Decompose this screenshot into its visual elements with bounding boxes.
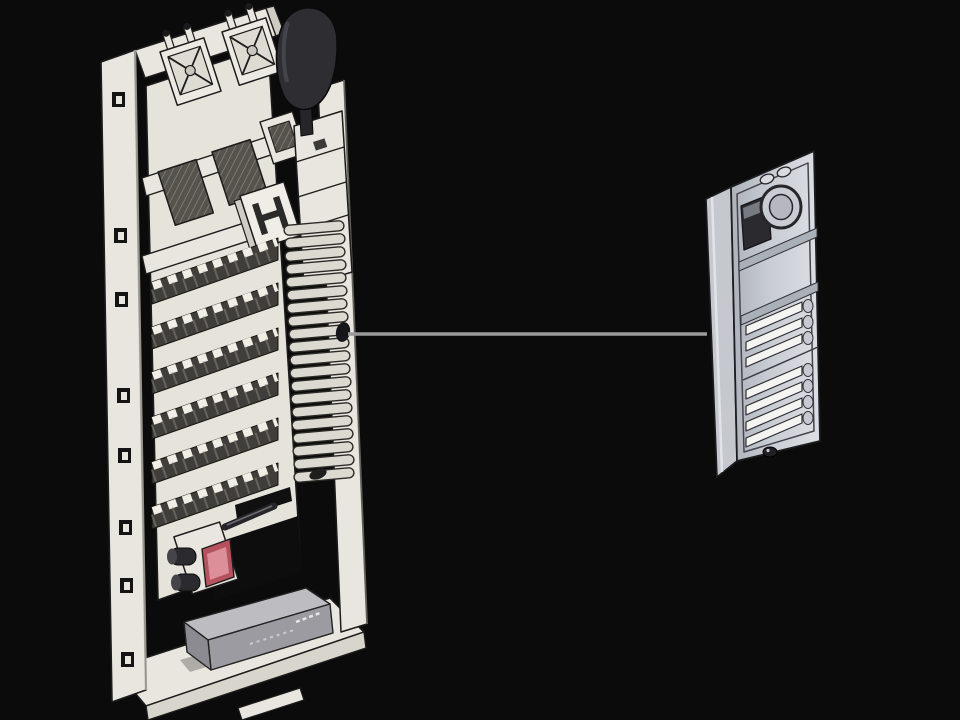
bottom-screw: [763, 447, 777, 457]
mounting-slot: [119, 520, 132, 535]
mounting-slot: [118, 448, 131, 463]
button-bump: [803, 396, 813, 409]
button-bump: [803, 316, 813, 329]
button-bump: [803, 364, 813, 377]
button-bump: [803, 412, 813, 425]
button-bump: [803, 300, 813, 313]
illustration-canvas: [0, 0, 960, 720]
mounting-slot: [120, 578, 133, 593]
mounting-slot: [117, 388, 130, 403]
mounting-slot: [121, 652, 134, 667]
diagram-svg: [0, 0, 960, 720]
mounting-slot: [115, 292, 128, 307]
button-bump: [803, 332, 813, 345]
button-bump: [803, 380, 813, 393]
camera-ring: [761, 186, 801, 228]
mounting-slot: [112, 92, 125, 107]
mounting-slot: [114, 228, 127, 243]
door-entry-panel: [706, 151, 820, 477]
